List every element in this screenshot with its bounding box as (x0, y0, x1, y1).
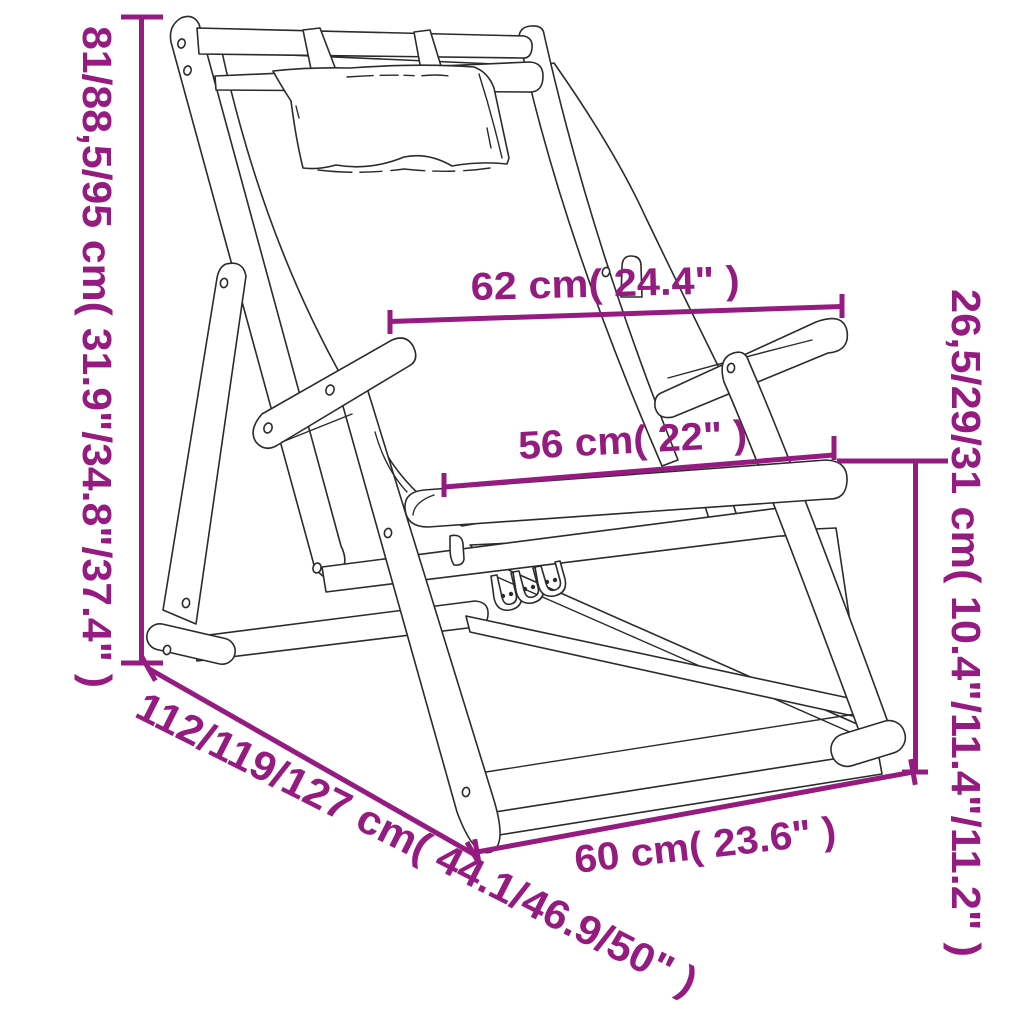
svg-text:62 cm( 24.4" ): 62 cm( 24.4" ) (470, 259, 740, 309)
svg-text:81/88,5/95 cm( 31.9"/34.8"/37.: 81/88,5/95 cm( 31.9"/34.8"/37.4" ) (74, 26, 120, 688)
svg-text:26,5/29/31 cm( 10.4"/11.4"/11.: 26,5/29/31 cm( 10.4"/11.4"/11.2" ) (943, 289, 989, 957)
